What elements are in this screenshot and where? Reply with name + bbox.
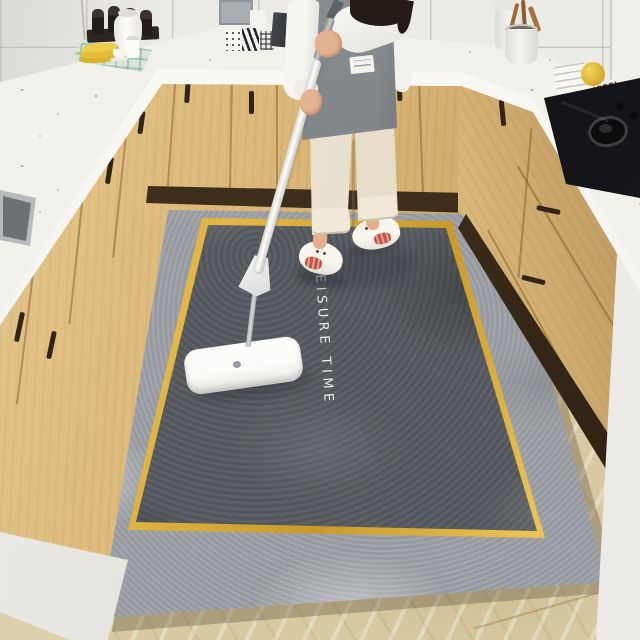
spice-grinder [92,9,104,34]
milk-bottle [126,36,139,58]
pant-cuff [357,194,398,222]
utensil-crock [505,29,538,64]
window-frame [219,0,253,25]
kitchen-scene: LEISURE TIME [0,0,640,640]
apron-label [349,55,375,74]
cabinet-handle [249,91,254,114]
slipper-face-eye [316,250,319,253]
burner-cap [599,124,612,133]
slipper-face-eye [323,252,326,255]
stove-knob [629,112,638,119]
cabinet-door-seam [276,68,278,192]
stove-knob [615,103,624,110]
pant-cuff [311,207,350,235]
jug-lid [118,9,137,17]
dotted-mug [224,30,241,51]
mop-head-hole [233,361,241,368]
leg-crease [352,140,355,230]
zebra-mug [242,28,259,51]
yellow-bowl [581,62,605,86]
white-mug [250,10,266,29]
